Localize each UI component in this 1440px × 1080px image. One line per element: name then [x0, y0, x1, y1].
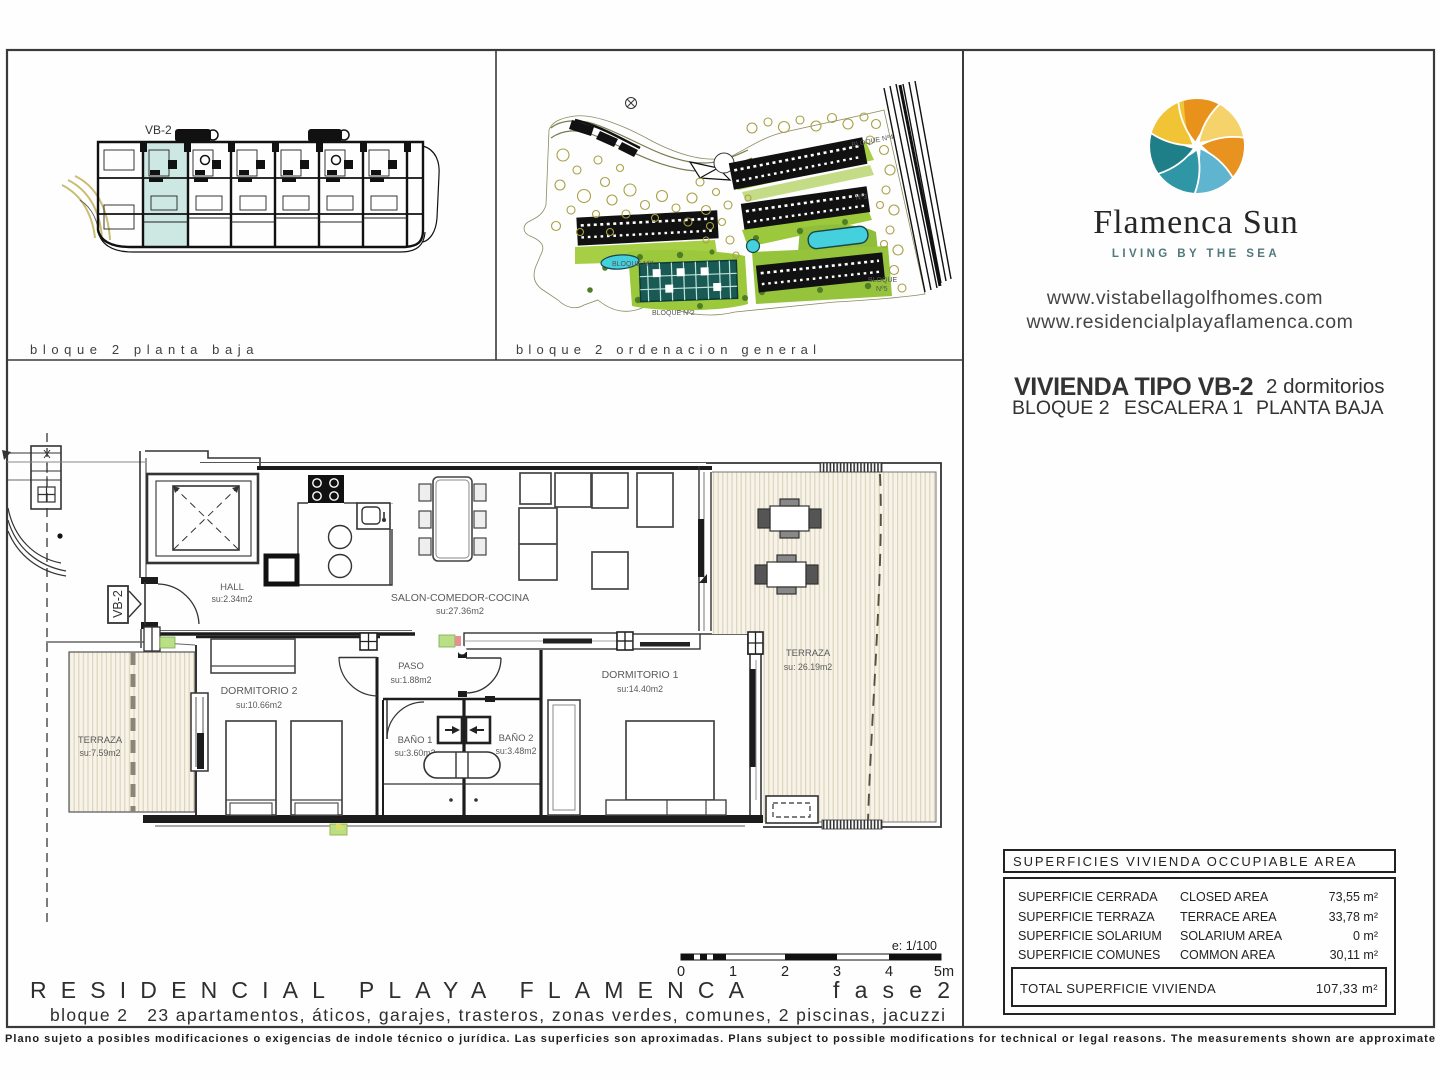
svg-text:su:27.36m2: su:27.36m2: [436, 606, 484, 616]
svg-text:SUPERFICIES VIVIENDA OCCUPIA: SUPERFICIES VIVIENDA OCCUPIABLE AREA: [1013, 854, 1357, 869]
svg-text:BLOQUE: BLOQUE: [868, 277, 898, 284]
svg-text:e: 1/100: e: 1/100: [892, 939, 937, 953]
svg-text:bloque 2 planta baja: bloque 2 planta baja: [30, 342, 259, 357]
svg-text:SALON-COMEDOR-COCINA: SALON-COMEDOR-COCINA: [391, 592, 529, 604]
svg-text:Flamenca Sun: Flamenca Sun: [1093, 204, 1299, 241]
svg-text:bloque 2 23 apartamentos, át: bloque 2 23 apartamentos, áticos, garaje…: [50, 1005, 945, 1025]
svg-text:su:3.48m2: su:3.48m2: [495, 746, 536, 756]
svg-text:VB-2: VB-2: [145, 123, 172, 137]
svg-text:su:10.66m2: su:10.66m2: [236, 700, 282, 710]
svg-text:DORMITORIO 1: DORMITORIO 1: [602, 669, 679, 681]
svg-text:BLOQUE Nº2: BLOQUE Nº2: [652, 310, 695, 317]
svg-text:bloque 2 ordenacion general: bloque 2 ordenacion general: [516, 342, 821, 357]
svg-text:VB-2: VB-2: [111, 590, 125, 618]
svg-text:su:1.88m2: su:1.88m2: [390, 675, 431, 685]
svg-text:www.residencialplayaflamenca.c: www.residencialplayaflamenca.com: [1025, 311, 1353, 333]
svg-text:HALL: HALL: [220, 582, 244, 593]
svg-text:2 dormitorios: 2 dormitorios: [1266, 375, 1385, 398]
svg-text:BAÑO 1: BAÑO 1: [398, 735, 433, 746]
svg-text:DORMITORIO 2: DORMITORIO 2: [221, 685, 298, 697]
svg-text:BLOQUE 2ESCALERA 1PLANTA BAJA: BLOQUE 2ESCALERA 1PLANTA BAJA: [1012, 397, 1384, 419]
svg-text:TERRAZA: TERRAZA: [78, 735, 123, 746]
svg-text:BAÑO 2: BAÑO 2: [499, 733, 534, 744]
svg-text:TOTAL SUPERFICIE VIVIENDA107: TOTAL SUPERFICIE VIVIENDA107,33 m²: [1020, 981, 1378, 996]
svg-text:PASO: PASO: [398, 661, 424, 672]
svg-text:su:7.59m2: su:7.59m2: [79, 748, 120, 758]
svg-text:su:2.34m2: su:2.34m2: [211, 594, 252, 604]
svg-text:Plano sujeto a posibles modifi: Plano sujeto a posibles modificaciones o…: [5, 1033, 1435, 1045]
svg-text:TERRAZA: TERRAZA: [786, 648, 831, 659]
svg-text:su: 26.19m2: su: 26.19m2: [784, 662, 833, 672]
svg-text:LIVING BY THE SEA: LIVING BY THE SEA: [1112, 248, 1280, 260]
svg-text:www.vistabellagolfhomes.com: www.vistabellagolfhomes.com: [1046, 287, 1323, 309]
svg-text:su:14.40m2: su:14.40m2: [617, 684, 663, 694]
svg-text:BLOQUE Nº1: BLOQUE Nº1: [612, 261, 655, 268]
svg-text:Nº5: Nº5: [876, 286, 888, 293]
